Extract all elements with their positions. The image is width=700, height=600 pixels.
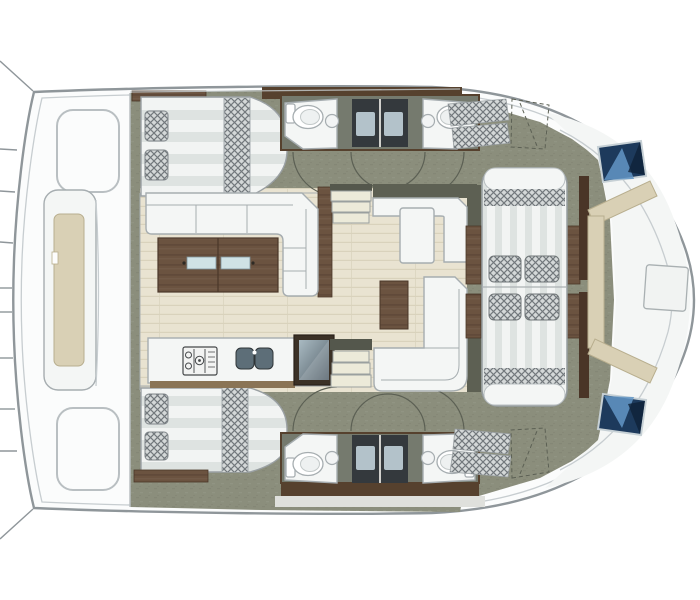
top-left-shower-tray — [356, 112, 375, 136]
chart-wall-band — [373, 184, 477, 198]
bottom-bed-foot-trim — [134, 470, 208, 482]
top-cabin-bed — [132, 91, 287, 196]
bottom-left-sink-icon — [326, 452, 339, 465]
top-left-sink-icon — [326, 115, 339, 128]
top-right-sink-icon — [422, 115, 435, 128]
top-bed-pillow-1 — [145, 111, 168, 141]
bow-backrest-bar — [588, 216, 604, 348]
bottom-gunwale-strip — [275, 496, 485, 507]
bottom-wall-wood-band — [281, 484, 479, 496]
saloon-furniture — [146, 187, 334, 388]
bottom-right-shower-tray — [384, 446, 403, 470]
fridge-unit — [294, 335, 334, 385]
bottom-bed-blanket-band — [222, 388, 248, 472]
bottom-bed-pillow-2 — [145, 432, 168, 460]
top-companionway-steps — [330, 184, 372, 223]
bottom-right-sink-icon — [422, 452, 435, 465]
top-bed-blanket-band — [224, 98, 250, 195]
table-glass-insert-1 — [187, 257, 216, 269]
lounge-pad-top-roll — [484, 168, 565, 190]
bottom-bathrooms — [281, 433, 479, 483]
bottom-bed-pillow-1 — [145, 394, 168, 424]
table-glass-insert-2 — [221, 257, 250, 269]
deck-hatch-top — [598, 141, 646, 182]
chart-area — [373, 184, 481, 392]
chaise-seat — [400, 208, 434, 263]
sofa-side-wood-panel — [318, 187, 332, 297]
cockpit-wall-bottom — [467, 338, 481, 392]
lounge-cushion-3 — [489, 294, 521, 320]
floor-plan-svg — [0, 0, 700, 600]
lounge-pad-bottom-roll — [484, 384, 565, 405]
floor-plan-stage — [0, 0, 700, 600]
deck-hatch-bottom — [598, 394, 646, 435]
bow-deck-table-outline — [644, 265, 689, 312]
coffee-table — [158, 238, 278, 292]
bottom-left-shower-tray — [356, 446, 375, 470]
cockpit-wall-top — [467, 185, 481, 227]
bottom-cabin-bed — [134, 388, 287, 482]
cockpit-lounge-pad — [482, 168, 567, 406]
lounge-cushion-4 — [525, 294, 559, 320]
top-bed-pillow-2 — [145, 150, 168, 180]
lounge-cushion-1 — [489, 256, 521, 282]
bottom-companionway-steps — [330, 339, 372, 387]
stern-bench-cushion — [54, 214, 84, 366]
lounge-pad-band-bottom — [484, 368, 565, 385]
lounge-pad-band-top — [484, 189, 565, 206]
top-right-shower-tray — [384, 112, 403, 136]
side-wood-table — [380, 281, 408, 329]
galley-base-wood — [150, 381, 295, 388]
stern-bench — [44, 190, 99, 390]
galley — [148, 335, 334, 388]
top-bathrooms — [281, 95, 479, 150]
stove-icon — [183, 347, 217, 375]
lounge-cushion-2 — [525, 256, 559, 282]
